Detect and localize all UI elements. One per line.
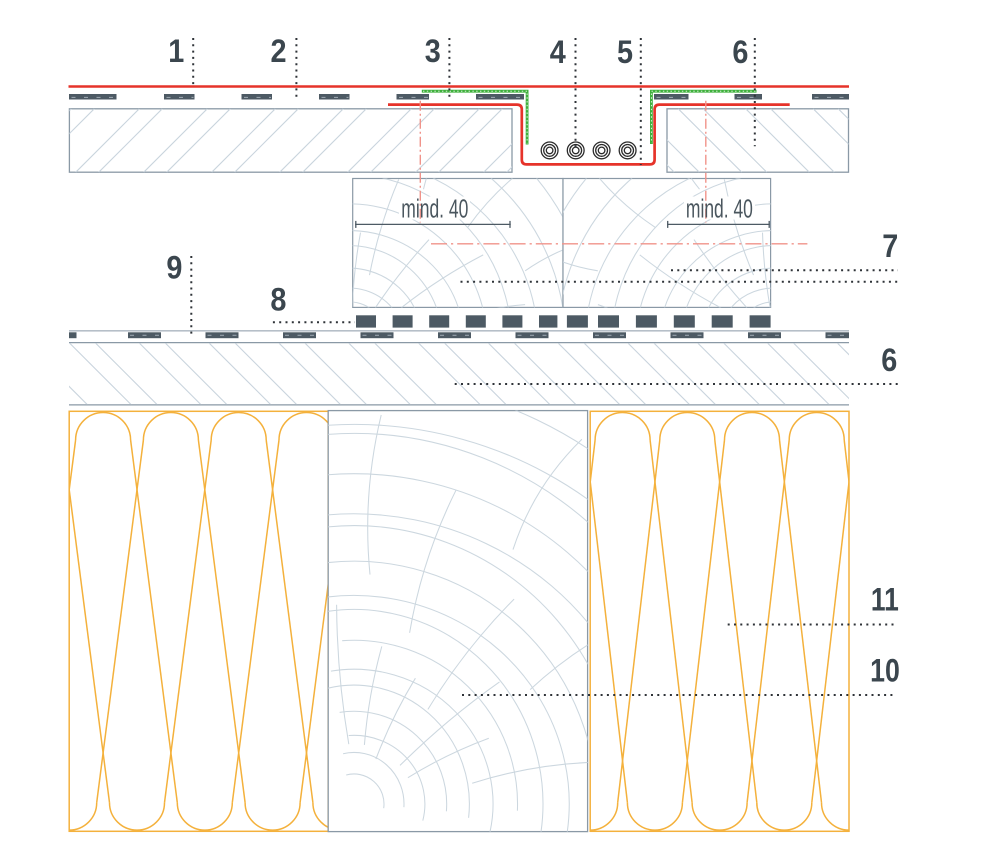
svg-text:5: 5 [617,34,633,70]
svg-text:3: 3 [425,33,441,69]
svg-text:6: 6 [881,342,897,378]
svg-text:2: 2 [270,33,286,69]
svg-text:10: 10 [870,653,900,689]
svg-text:6: 6 [732,34,748,70]
svg-text:4: 4 [550,34,566,70]
svg-text:9: 9 [166,250,182,286]
svg-text:mind. 40: mind. 40 [686,195,753,223]
svg-text:mind. 40: mind. 40 [401,195,468,223]
svg-text:7: 7 [882,229,898,265]
svg-text:1: 1 [168,33,184,69]
svg-text:8: 8 [270,282,286,318]
svg-text:11: 11 [871,582,899,618]
